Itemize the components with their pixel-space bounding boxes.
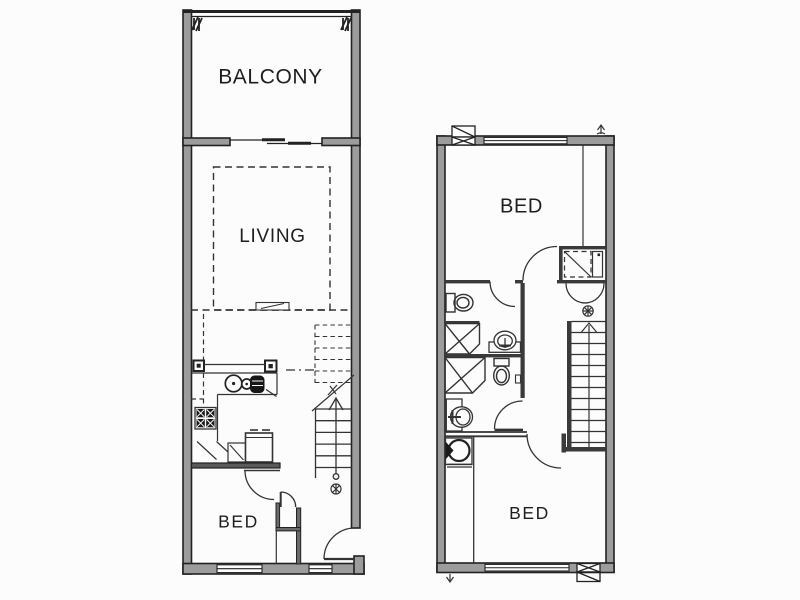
svg-text:BED: BED bbox=[500, 196, 543, 218]
svg-text:BED: BED bbox=[509, 503, 550, 523]
svg-text:BED: BED bbox=[218, 512, 259, 532]
svg-text:LIVING: LIVING bbox=[239, 226, 306, 247]
svg-text:BALCONY: BALCONY bbox=[218, 66, 323, 89]
